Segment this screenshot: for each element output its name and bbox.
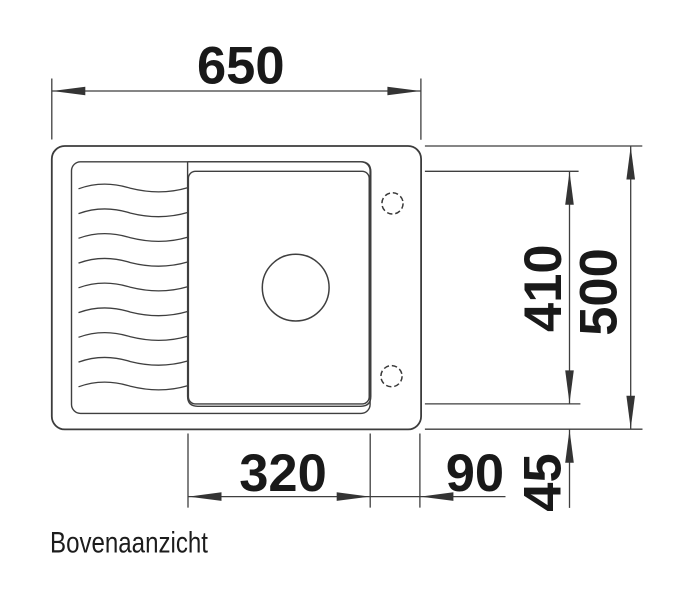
svg-text:45: 45: [514, 453, 573, 511]
svg-text:410: 410: [514, 244, 573, 332]
svg-text:500: 500: [570, 248, 629, 336]
svg-text:320: 320: [239, 444, 327, 503]
svg-text:Bovenaanzicht: Bovenaanzicht: [50, 527, 208, 560]
svg-text:90: 90: [446, 444, 504, 503]
svg-text:650: 650: [197, 37, 285, 96]
